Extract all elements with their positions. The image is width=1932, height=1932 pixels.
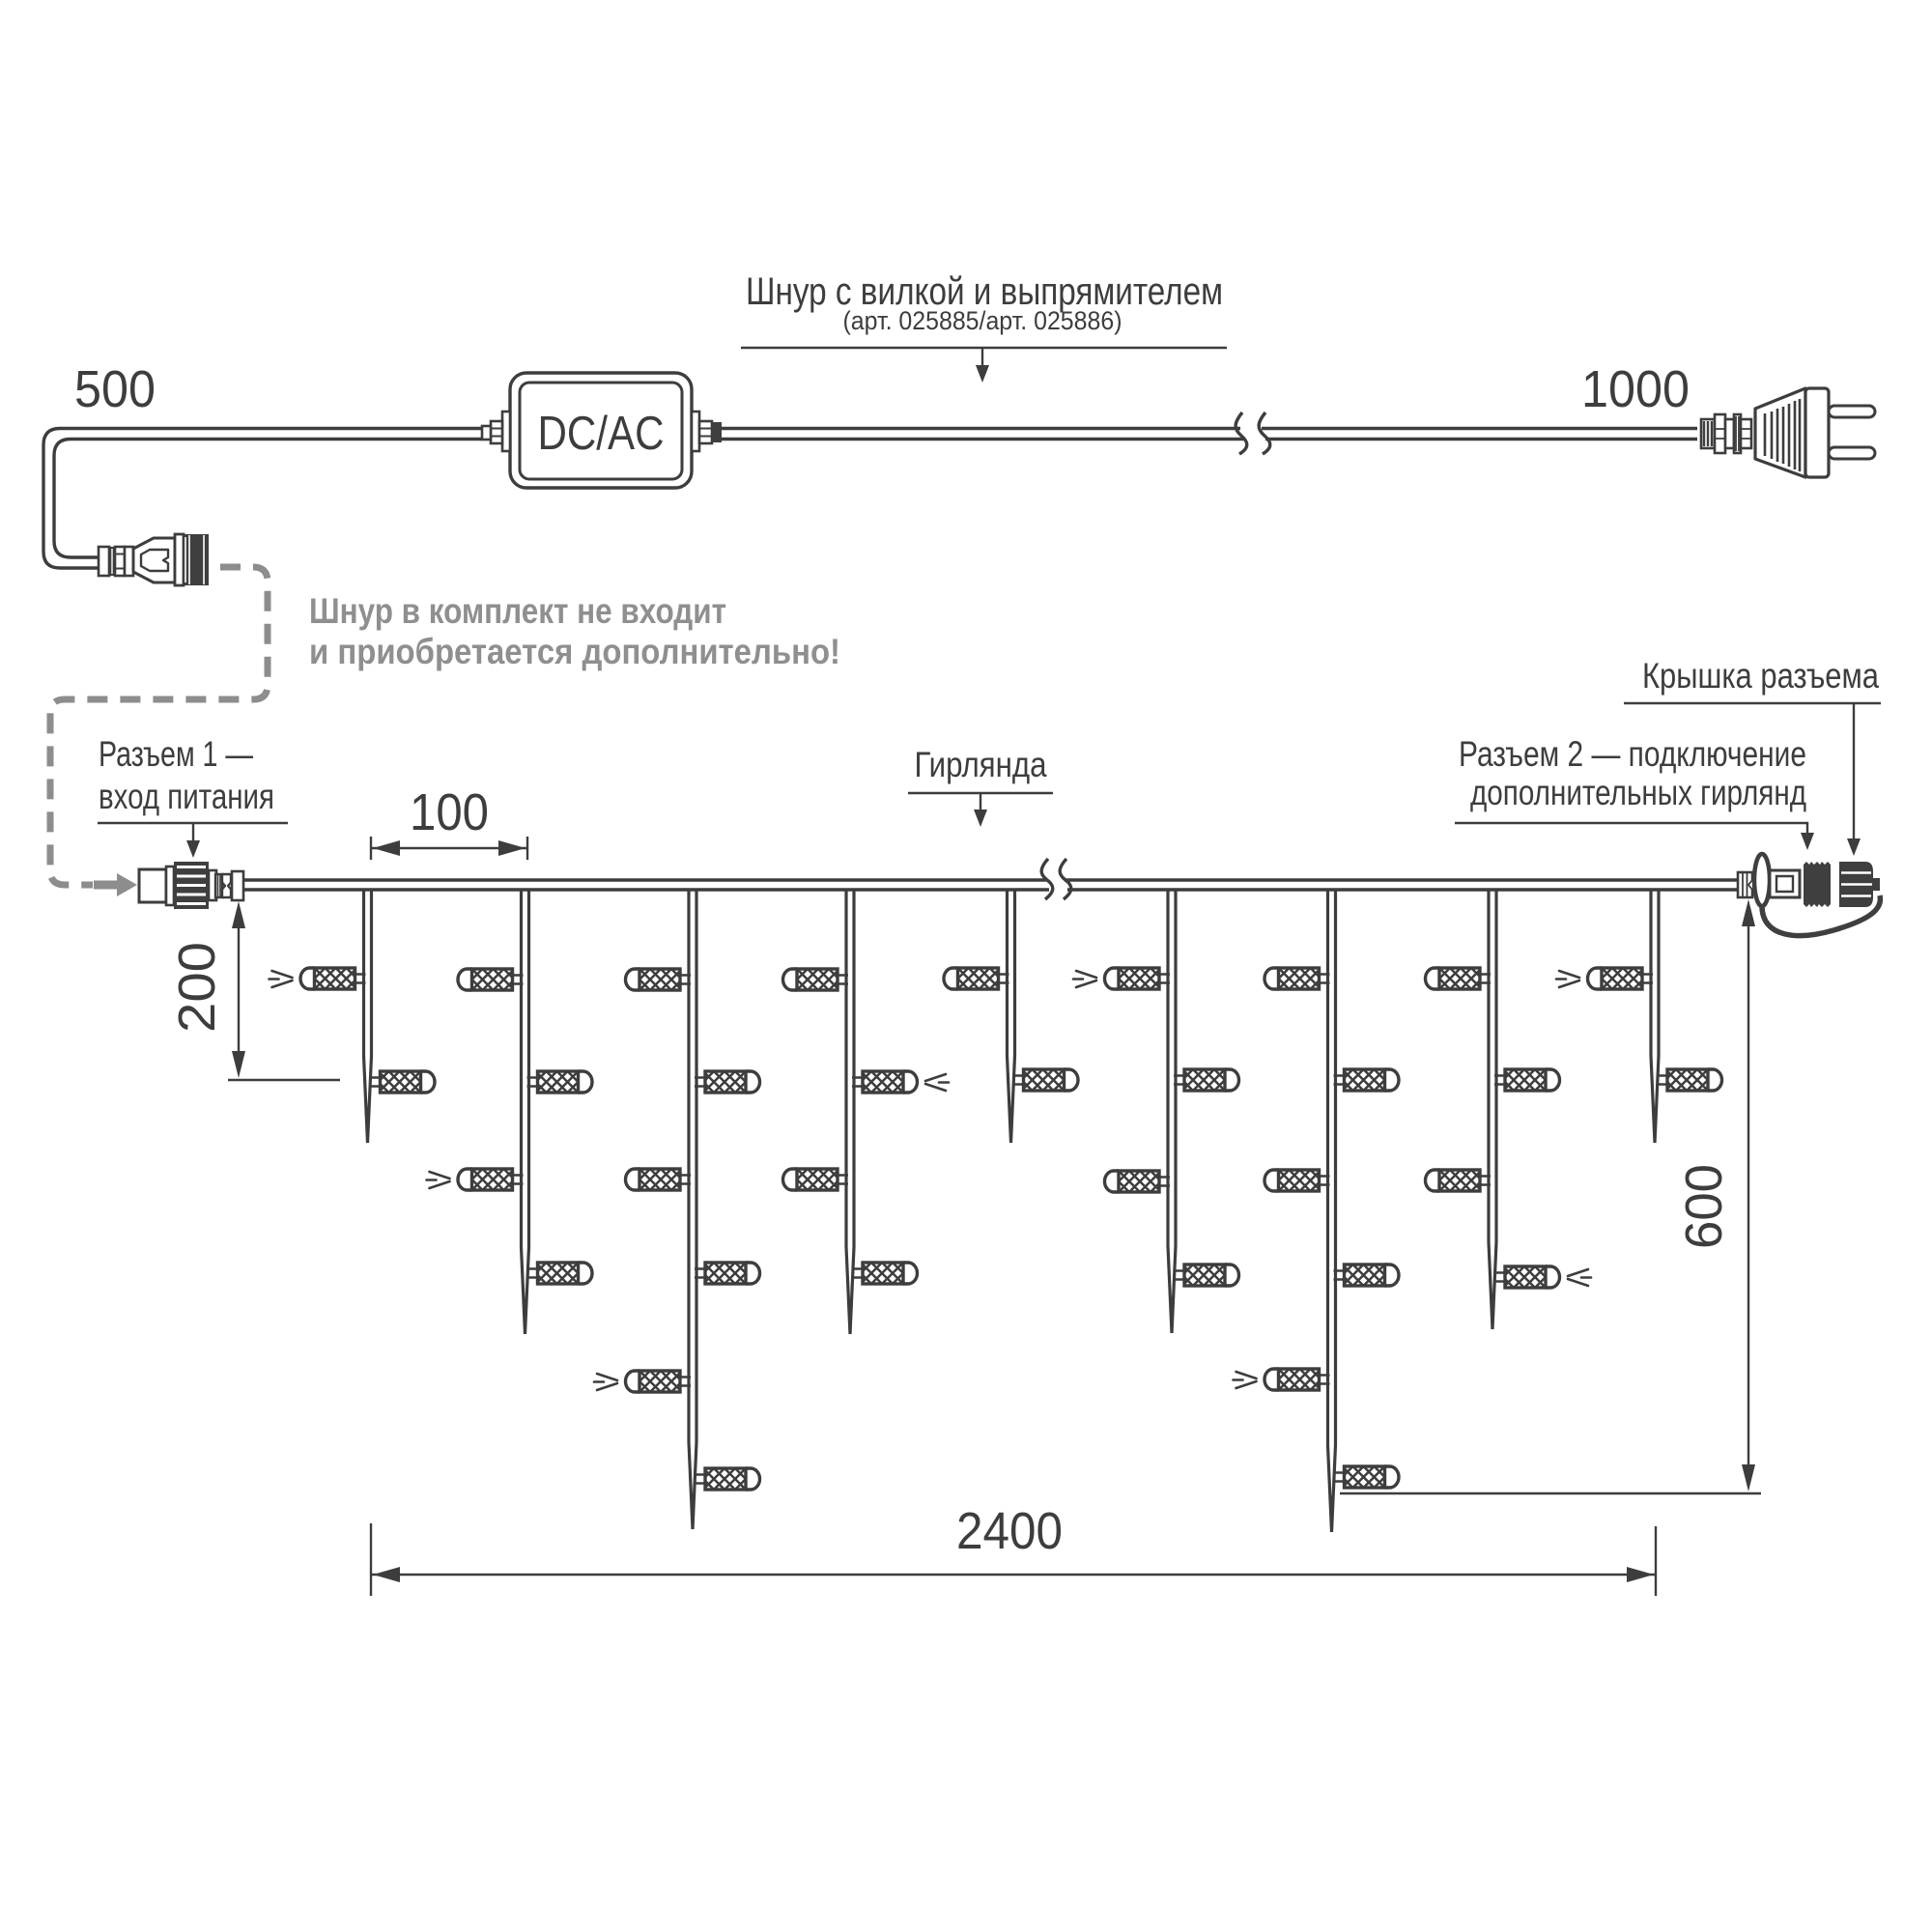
svg-text:Крышка разъема: Крышка разъема bbox=[1642, 656, 1879, 696]
svg-text:500: 500 bbox=[74, 360, 156, 418]
svg-text:Разъем 1 —: Разъем 1 — bbox=[99, 734, 253, 774]
svg-text:DC/AC: DC/AC bbox=[538, 408, 665, 460]
svg-text:100: 100 bbox=[410, 783, 489, 841]
svg-text:Шнур в комплект не входит: Шнур в комплект не входит bbox=[309, 591, 726, 631]
svg-text:2400: 2400 bbox=[956, 1502, 1063, 1560]
svg-text:Разъем 2 — подключение: Разъем 2 — подключение bbox=[1459, 734, 1806, 774]
svg-text:Гирлянда: Гирлянда bbox=[915, 745, 1047, 784]
svg-text:вход питания: вход питания bbox=[99, 777, 274, 816]
svg-text:и приобретается дополнительно!: и приобретается дополнительно! bbox=[309, 632, 840, 671]
svg-text:1000: 1000 bbox=[1581, 360, 1690, 418]
svg-text:(арт. 025885/арт. 025886): (арт. 025885/арт. 025886) bbox=[843, 306, 1122, 335]
svg-text:600: 600 bbox=[1675, 1164, 1733, 1249]
svg-text:200: 200 bbox=[168, 942, 226, 1033]
svg-text:дополнительных гирлянд: дополнительных гирлянд bbox=[1470, 773, 1806, 812]
